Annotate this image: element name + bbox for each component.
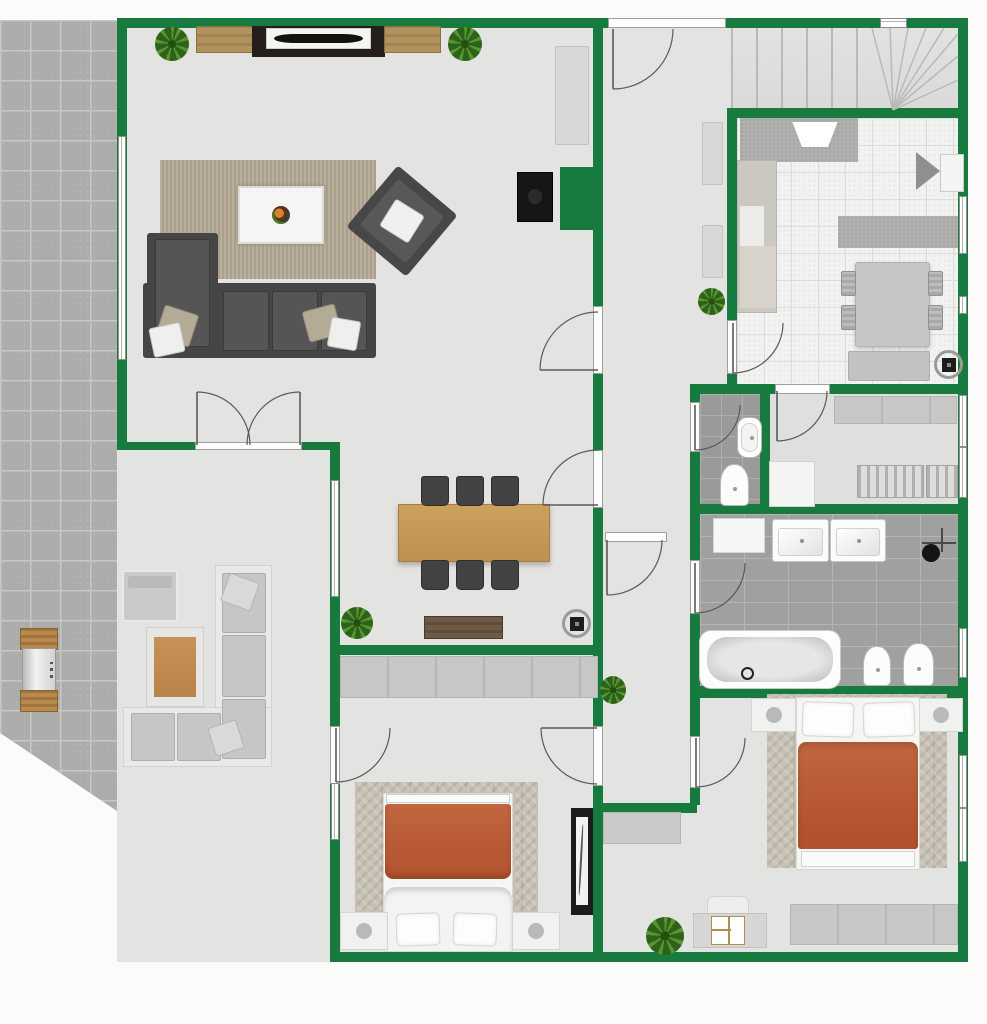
bath-sink-2 [830, 519, 886, 562]
shower-head [922, 544, 940, 562]
pillow [801, 701, 854, 738]
dining-window [331, 480, 339, 597]
corridor-plant [600, 676, 626, 704]
living-door-threshold [593, 306, 603, 374]
hall-plant [698, 288, 725, 315]
bedright-window-1 [959, 755, 967, 808]
bedleft-wardrobe [340, 656, 598, 698]
bedleft-bed [383, 793, 513, 952]
bedright-bed [796, 697, 920, 870]
kitchen-counter-left [737, 160, 777, 313]
kitchen-chair [928, 271, 943, 296]
kitchen-appliance [940, 154, 964, 192]
pillow [862, 701, 915, 738]
patio-double-door-threshold [195, 442, 302, 450]
tv-sideboard-left [196, 26, 253, 53]
kitchen-island [838, 216, 958, 248]
standing-mirror [571, 808, 593, 915]
patio-sofa [123, 565, 272, 767]
dining-door-threshold [593, 450, 603, 508]
living-plant-left [155, 27, 189, 61]
closet-window-1 [959, 395, 967, 447]
dining-chair [456, 560, 484, 590]
kitchen-window-1 [959, 196, 967, 254]
stove-glass [528, 189, 542, 203]
bath-shower [922, 528, 956, 562]
dining-chair [456, 476, 484, 506]
bedright-wardrobe [790, 904, 958, 945]
wall-fireplace-pier [560, 167, 603, 230]
stairs-top-window [880, 18, 907, 28]
dining-sideboard [424, 616, 503, 639]
kitchen-bench [848, 351, 930, 381]
desk-organizer [711, 916, 745, 945]
dining-plant [341, 607, 373, 639]
television [274, 34, 363, 43]
bedleft-nightstand-1 [340, 912, 388, 950]
bedright-door-threshold [690, 736, 700, 788]
kitchen-chair [841, 271, 856, 296]
fruit-bowl [272, 206, 290, 224]
kitchen-chair [841, 305, 856, 330]
closet-shelf-1 [857, 465, 924, 498]
kitchen-corner-appliance [916, 150, 964, 192]
pantry-door-threshold [775, 384, 830, 394]
bedright-nightstand-1 [751, 698, 796, 732]
dining-table [398, 504, 550, 562]
dining-chair [421, 560, 449, 590]
stair-treads [731, 28, 879, 108]
hall-cabinet-1 [702, 122, 723, 185]
floor-plan [0, 0, 987, 1024]
dining-chair [421, 476, 449, 506]
living-plant-right [448, 27, 482, 61]
bedright-plant [646, 917, 684, 955]
bedright-desk [693, 896, 767, 950]
hall-cabinet-2 [702, 225, 723, 278]
closet-wardrobe [834, 396, 957, 424]
dining-round-stove [562, 609, 591, 638]
bath-bidet [863, 646, 891, 686]
grill-body [22, 648, 56, 692]
living-sofa [143, 233, 376, 358]
lamp [356, 923, 372, 939]
kitchen-chair [928, 305, 943, 330]
bedright-nightstand-2 [919, 698, 963, 732]
bedleft-nightstand-2 [512, 912, 560, 950]
dining-chair [491, 476, 519, 506]
tv-console [252, 26, 385, 57]
bedleft-door-threshold [593, 726, 603, 786]
pillow [452, 912, 497, 947]
corner-shelf [916, 152, 940, 190]
bath-cabinet [713, 518, 765, 553]
footboard [386, 794, 510, 803]
kitchen-window-2 [959, 296, 967, 314]
bedright-dresser [603, 812, 681, 844]
tv-sideboard-right [384, 26, 441, 53]
wc-sink [737, 417, 762, 458]
wall-stove [517, 172, 553, 222]
wall-bedleft-top [330, 645, 603, 655]
bath-sink-1 [772, 519, 829, 562]
lamp [528, 923, 544, 939]
living-cabinet [555, 46, 589, 145]
bedleft-window [331, 783, 339, 840]
wall-bottom [330, 952, 968, 962]
lamp [766, 707, 782, 723]
kitchen-table [855, 262, 930, 347]
closet-dresser [769, 461, 815, 507]
patio-grill [20, 628, 58, 712]
tub-basin [707, 637, 833, 682]
wc-toilet [720, 464, 749, 506]
bath-window [959, 628, 967, 678]
wc-door-threshold [690, 402, 700, 452]
bath-toilet [903, 643, 934, 686]
dining-chair [491, 560, 519, 590]
footboard [801, 851, 915, 867]
pillow [395, 912, 440, 947]
closet-window-2 [959, 447, 967, 498]
kitchen-round-stove [934, 350, 963, 379]
duvet [385, 804, 511, 879]
closet-shelf-2 [926, 465, 958, 498]
corridor-door-threshold [605, 532, 667, 542]
lamp [933, 707, 949, 723]
living-window [118, 136, 126, 360]
bathtub [699, 630, 841, 689]
bath-door-threshold [690, 560, 700, 614]
kitchen-door-threshold [727, 320, 737, 374]
entry-door-threshold [608, 18, 726, 28]
wall-stairs-bottom [727, 108, 968, 118]
duvet [798, 742, 918, 849]
bedright-window-2 [959, 808, 967, 862]
bedleft-patio-door-threshold [330, 726, 340, 784]
